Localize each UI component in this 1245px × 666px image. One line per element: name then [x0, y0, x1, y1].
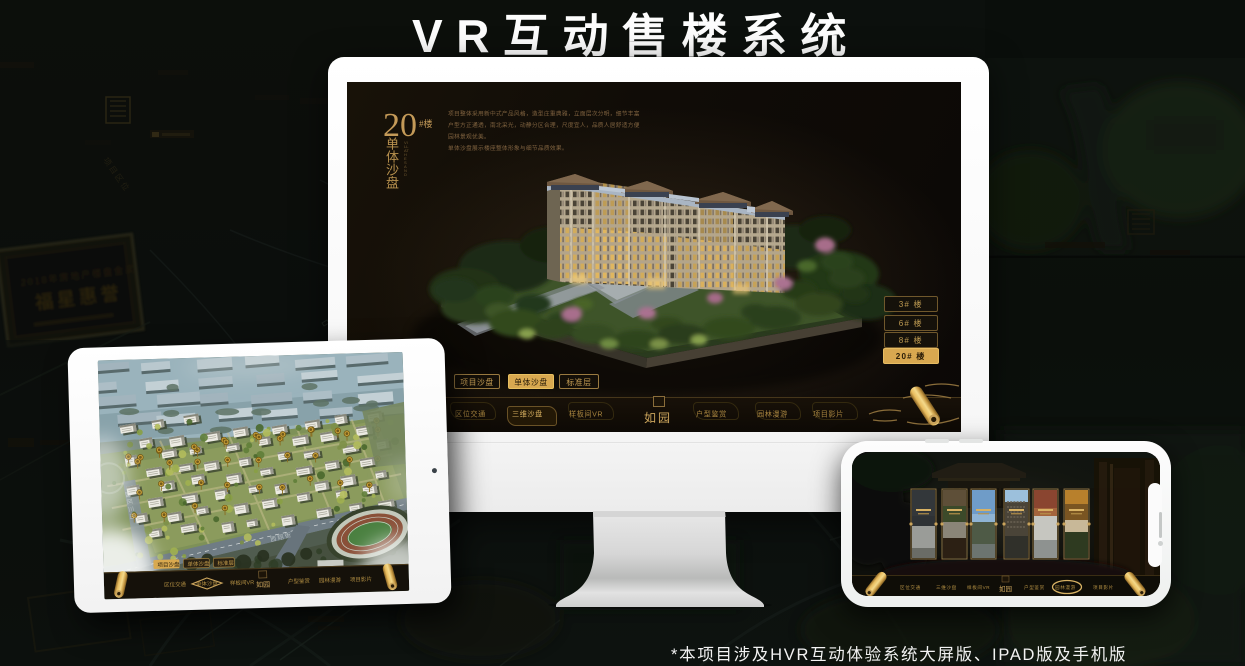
- svg-text:园林漫游: 园林漫游: [1055, 584, 1076, 591]
- svg-text:三维沙盘: 三维沙盘: [936, 584, 957, 591]
- svg-text:如园: 如园: [999, 584, 1012, 593]
- svg-text:户型鉴赏: 户型鉴赏: [1024, 584, 1045, 591]
- svg-text:项目影片: 项目影片: [1093, 584, 1114, 591]
- svg-text:区位交通: 区位交通: [900, 584, 921, 591]
- svg-text:样板间VR: 样板间VR: [967, 584, 990, 591]
- svg-text:如园: 如园: [256, 580, 270, 589]
